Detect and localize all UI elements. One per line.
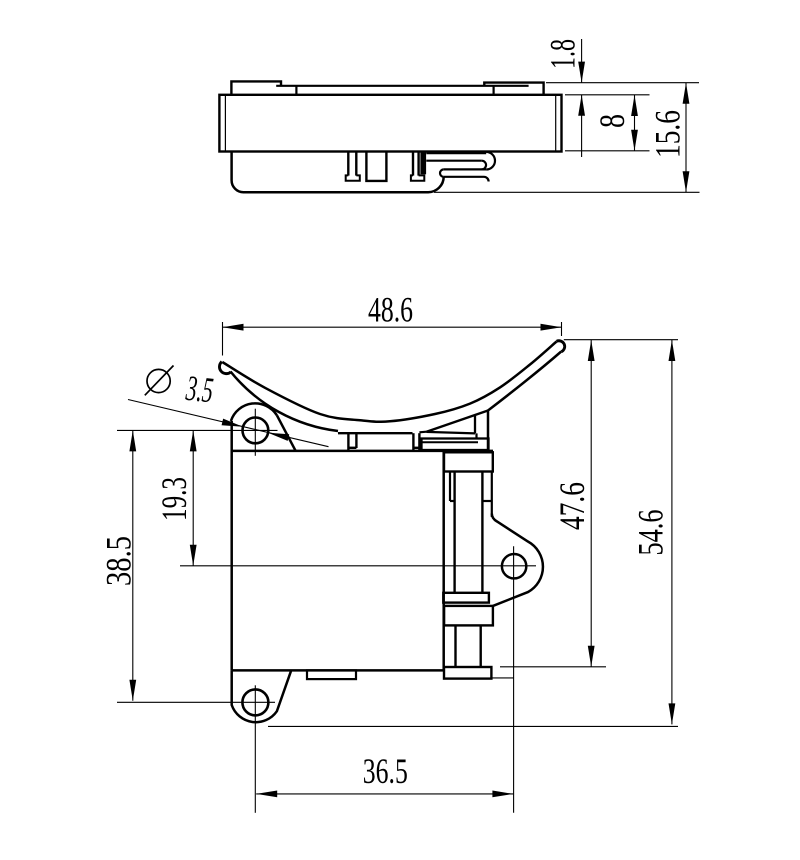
svg-text:1.8: 1.8 (543, 39, 583, 69)
svg-text:15.6: 15.6 (648, 110, 688, 158)
svg-text:19.3: 19.3 (154, 477, 194, 521)
svg-text:47.6: 47.6 (552, 482, 592, 530)
svg-text:3.5: 3.5 (184, 368, 216, 411)
svg-text:38.5: 38.5 (99, 536, 139, 586)
svg-text:8: 8 (592, 114, 632, 128)
svg-text:48.6: 48.6 (368, 289, 413, 329)
svg-text:54.6: 54.6 (631, 510, 671, 556)
svg-text:36.5: 36.5 (363, 751, 408, 791)
